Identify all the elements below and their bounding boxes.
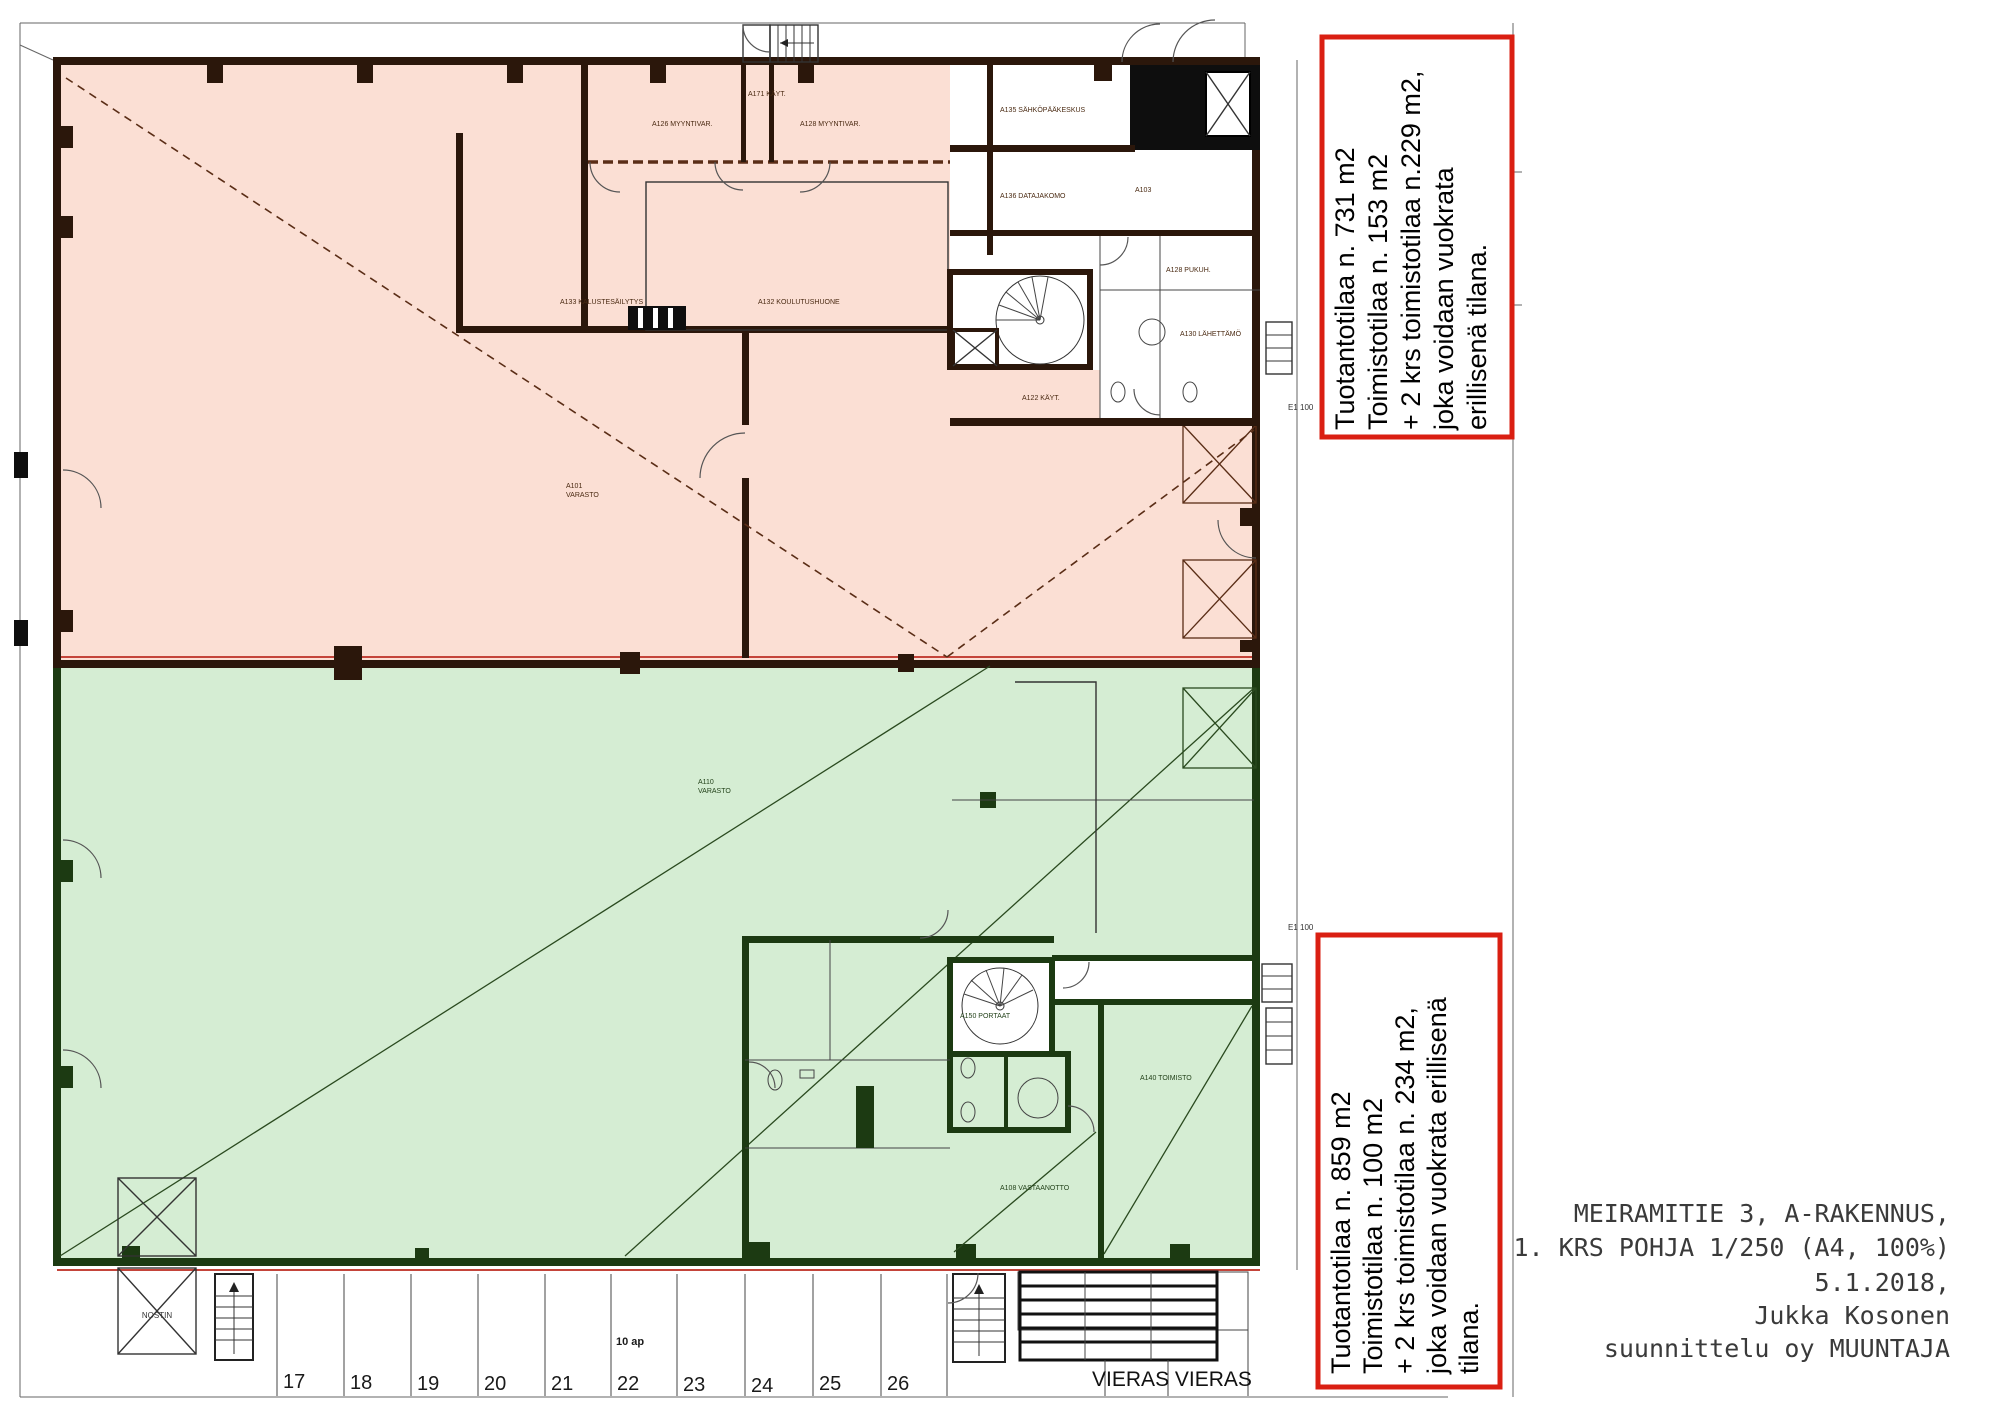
entrance-door-arc	[1173, 20, 1215, 62]
outdoor-stairs-right	[948, 1273, 1005, 1362]
room-label: A128 PUKUH.	[1166, 267, 1211, 274]
parking-stall-number: 26	[887, 1373, 909, 1395]
title-line: 5.1.2018,	[1815, 1268, 1950, 1297]
room-label: A103	[1135, 187, 1151, 194]
parking-stall-dividers	[277, 1274, 947, 1396]
annotation-line: tilana.	[1454, 1302, 1484, 1374]
parking-capacity-label: 10 ap	[616, 1336, 644, 1348]
floor-plan-svg: 17 18 19 20 21 22 23 24 25 26 10 ap	[0, 0, 2000, 1414]
lift-label: NOSTIN	[142, 1311, 172, 1320]
visitor-parking-label: VIERAS VIERAS	[1092, 1368, 1252, 1391]
title-line: MEIRAMITIE 3, A-RAKENNUS,	[1574, 1199, 1950, 1228]
title-line: 1. KRS POHJA 1/250 (A4, 100%)	[1514, 1233, 1951, 1262]
room-label: A140 TOIMISTO	[1140, 1075, 1192, 1082]
parking-stall-number: 23	[683, 1374, 705, 1396]
annotation-line: erillisenä tilana.	[1462, 244, 1492, 430]
shaft	[856, 1086, 874, 1148]
entrance-door-arc	[1122, 24, 1160, 62]
annotation-line: Toimistotilaa n. 153 m2	[1363, 154, 1393, 430]
room-label: A126 MYYNTIVAR.	[652, 121, 713, 128]
room-label: A101	[566, 483, 582, 490]
parking-stall-number: 17	[283, 1371, 305, 1393]
title-block: MEIRAMITIE 3, A-RAKENNUS, 1. KRS POHJA 1…	[1514, 1199, 1951, 1363]
annotation-line: + 2 krs toimistotilaa n.229 m2,	[1396, 71, 1426, 430]
parking-stall-number: 19	[417, 1373, 439, 1395]
annotation-line: Tuotantotilaa n. 859 m2	[1326, 1091, 1356, 1374]
site-marker	[14, 452, 28, 478]
parking-area: 17 18 19 20 21 22 23 24 25 26 10 ap	[215, 1272, 1252, 1397]
annotation-box-lower: Tuotantotilaa n. 859 m2 Toimistotilaa n.…	[1318, 935, 1500, 1387]
room-label: A171 KÄYT.	[748, 90, 786, 98]
annotation-line: Tuotantotilaa n. 731 m2	[1330, 147, 1360, 430]
room-label: A130 LÄHETTÄMÖ	[1180, 330, 1242, 338]
bottom-wall	[53, 1258, 1260, 1266]
parking-stall-number: 24	[751, 1375, 773, 1397]
stairs-direction-arrow	[780, 39, 788, 47]
annotation-line: Toimistotilaa n. 100 m2	[1358, 1098, 1388, 1374]
room-label: A108 VASTAANOTTO	[1000, 1185, 1070, 1192]
stairs-up-arrow	[229, 1282, 239, 1292]
title-line: suunnittelu oy MUUNTAJA	[1604, 1334, 1950, 1363]
zone-divider-wall	[53, 660, 1260, 668]
room-label: VARASTO	[566, 492, 599, 499]
parking-stall-number: 22	[617, 1373, 639, 1395]
room-label: A150 PORTAAT	[960, 1013, 1011, 1020]
room-label: A133 KALUSTESÄILYTYS	[560, 298, 643, 306]
parking-stall-number: 20	[484, 1373, 506, 1395]
floor-plan-canvas: 17 18 19 20 21 22 23 24 25 26 10 ap	[0, 0, 2000, 1414]
outdoor-stairs-left	[215, 1274, 253, 1360]
room-label: A110	[698, 779, 714, 786]
annotation-line: joka voidaan vuokrata erillisenä	[1422, 996, 1452, 1375]
room-label: A132 KOULUTUSHUONE	[758, 299, 840, 306]
parking-stall-number: 21	[551, 1373, 573, 1395]
room-label: VARASTO	[698, 788, 731, 795]
site-marker	[14, 620, 28, 646]
elevation-marker: E1 100	[1288, 923, 1314, 932]
room-label: A122 KÄYT.	[1022, 394, 1060, 402]
room-label: A135 SÄHKÖPÄÄKESKUS	[1000, 106, 1086, 114]
annotation-line: joka voidaan vuokrata	[1429, 166, 1459, 431]
annotation-line: + 2 krs toimistotilaa n. 234 m2,	[1390, 1007, 1420, 1374]
room-label: A128 MYYNTIVAR.	[800, 121, 861, 128]
parking-stall-number: 18	[350, 1372, 372, 1394]
parking-stall-number: 25	[819, 1373, 841, 1395]
title-line: Jukka Kosonen	[1754, 1301, 1950, 1330]
room-label: A136 DATAJAKOMO	[1000, 193, 1066, 200]
elevation-marker: E1 100	[1288, 403, 1314, 412]
annotation-box-upper: Tuotantotilaa n. 731 m2 Toimistotilaa n.…	[1322, 37, 1512, 437]
